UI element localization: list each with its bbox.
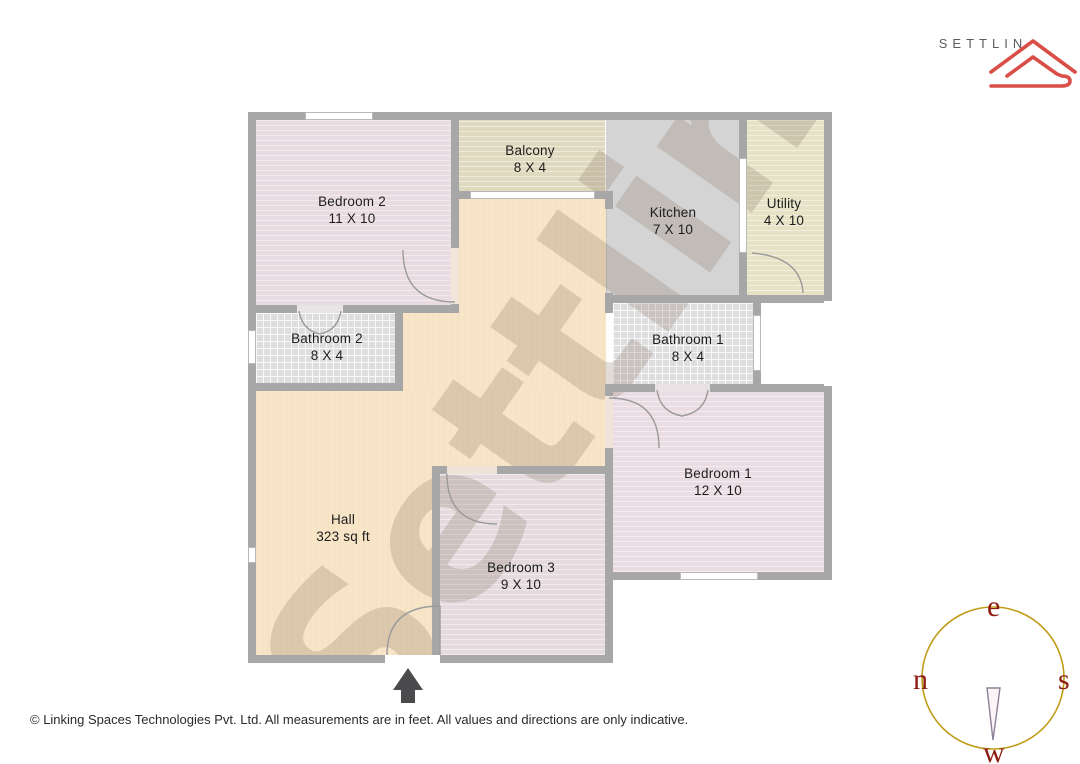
compass-letter-east: e	[987, 590, 1000, 623]
door-arc-bedroom-2	[403, 250, 455, 302]
label-bedroom-3: Bedroom 39 X 10	[441, 559, 601, 593]
door-arc-bedroom-3	[447, 474, 497, 524]
compass-needle-icon	[987, 688, 1000, 740]
label-balcony: Balcony8 X 4	[470, 142, 590, 176]
label-bedroom-1: Bedroom 112 X 10	[638, 465, 798, 499]
label-bathroom-1: Bathroom 18 X 4	[618, 331, 758, 365]
compass: e n s w	[905, 585, 1080, 764]
compass-letter-west: w	[983, 736, 1005, 764]
floor-plan-page: SETTLIN Settlin	[0, 0, 1080, 764]
label-kitchen: Kitchen7 X 10	[613, 204, 733, 238]
door-arc-entrance	[387, 606, 440, 655]
door-arc-bedroom-1	[609, 398, 659, 448]
label-bedroom-2: Bedroom 211 X 10	[272, 193, 432, 227]
label-bathroom-2: Bathroom 28 X 4	[257, 330, 397, 364]
footer-disclaimer: © Linking Spaces Technologies Pvt. Ltd. …	[30, 712, 688, 727]
label-utility: Utility4 X 10	[744, 195, 824, 229]
entrance-arrow-icon	[388, 664, 430, 706]
compass-letter-north: n	[913, 663, 928, 696]
compass-letter-south: s	[1058, 663, 1070, 696]
label-hall: Hall323 sq ft	[283, 511, 403, 545]
door-arc-utility	[752, 253, 803, 293]
